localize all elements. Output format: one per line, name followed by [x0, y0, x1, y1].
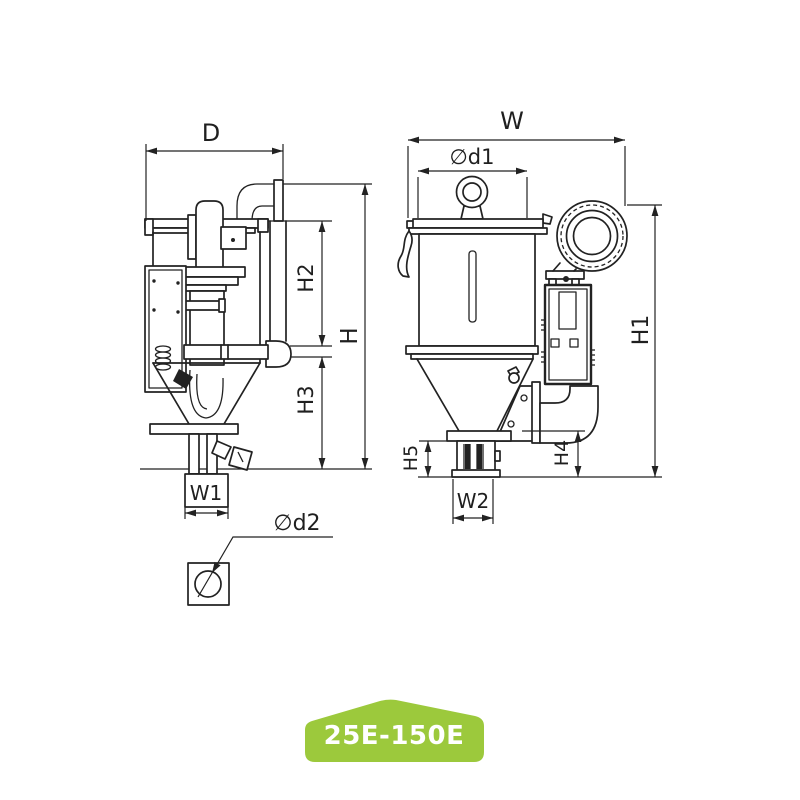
model-range-badge: 25E-150E: [305, 700, 484, 762]
dim-label-H1: H1: [629, 315, 654, 346]
hopper-dryer-dimension-drawing: D H2 H3 H W1: [0, 0, 800, 800]
dim-label-H3: H3: [294, 385, 318, 414]
outlet-detail-circle: [195, 571, 221, 597]
side-chute-cap: [229, 447, 252, 470]
dimension-H1: H1: [627, 205, 662, 477]
dim-label-W2: W2: [457, 489, 490, 513]
blower-fan: [553, 201, 627, 271]
dimension-H: H: [283, 184, 372, 469]
lid-latch-lever: [398, 231, 412, 277]
badge-label: 25E-150E: [324, 721, 465, 751]
screenshot-canvas: D H2 H3 H W1: [0, 0, 800, 800]
hopper-body: [419, 234, 535, 346]
dim-label-H5: H5: [400, 445, 422, 471]
discharge-base-front: [447, 431, 511, 477]
lid-catch: [543, 214, 552, 224]
control-box: [145, 266, 193, 392]
outlet-detail: ∅d2: [188, 511, 333, 605]
dim-label-D: D: [202, 119, 220, 147]
right-view-drawing: [398, 177, 662, 478]
cone-knob: [509, 373, 519, 383]
motor-cylinder: [188, 201, 223, 270]
dim-label-H4: H4: [551, 440, 573, 466]
dim-label-d1: ∅d1: [450, 145, 495, 169]
dimension-H3: H3: [290, 346, 332, 469]
top-elbow-pipe: [237, 180, 283, 221]
dimension-W2: W2: [453, 479, 493, 524]
elbow-flange: [274, 180, 283, 221]
dim-label-W1: W1: [190, 481, 223, 505]
dimension-H5: H5: [400, 441, 447, 477]
dimension-H2: H2: [268, 221, 332, 346]
dim-label-H: H: [337, 327, 363, 344]
discharge-base-side: [150, 424, 252, 474]
lid-handle: [457, 177, 488, 220]
dim-label-d2: ∅d2: [273, 511, 320, 536]
junction-box: [221, 227, 246, 249]
dim-label-H2: H2: [294, 263, 318, 292]
dimension-W1: W1: [185, 481, 228, 519]
heater-box: [541, 271, 595, 384]
dim-label-W: W: [500, 107, 524, 135]
